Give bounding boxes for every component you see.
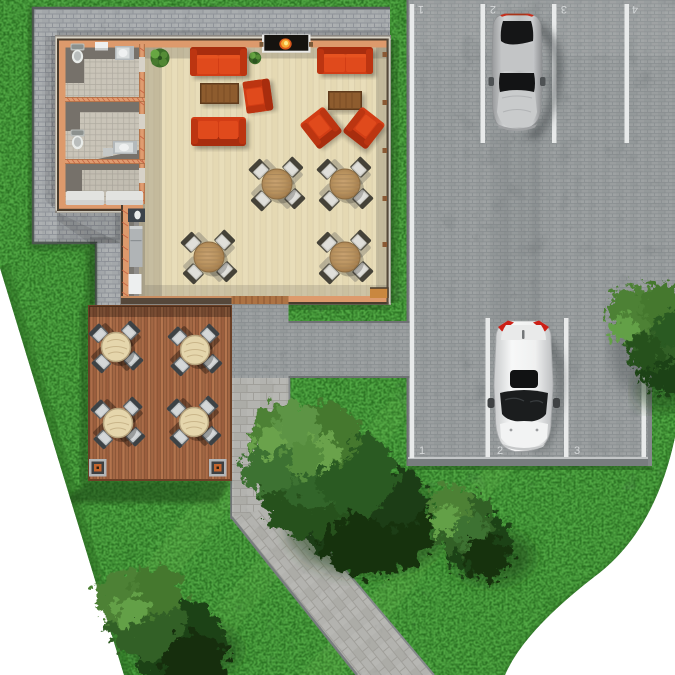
svg-text:3: 3 [574, 445, 580, 457]
svg-text:4: 4 [632, 3, 638, 15]
svg-text:2: 2 [497, 445, 503, 457]
svg-text:3: 3 [561, 3, 567, 15]
svg-text:2: 2 [490, 3, 496, 15]
svg-text:1: 1 [419, 445, 425, 457]
svg-text:1: 1 [418, 3, 424, 15]
